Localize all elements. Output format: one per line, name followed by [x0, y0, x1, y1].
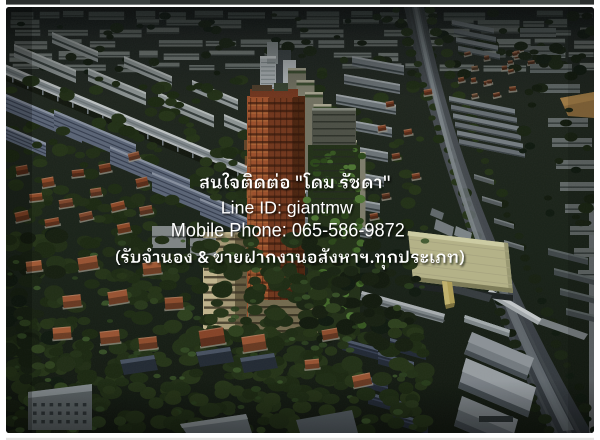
svg-text:Line ID: giantmw: Line ID: giantmw	[221, 197, 353, 217]
svg-text:Mobile Phone: 065-586-9872: Mobile Phone: 065-586-9872	[171, 220, 405, 241]
